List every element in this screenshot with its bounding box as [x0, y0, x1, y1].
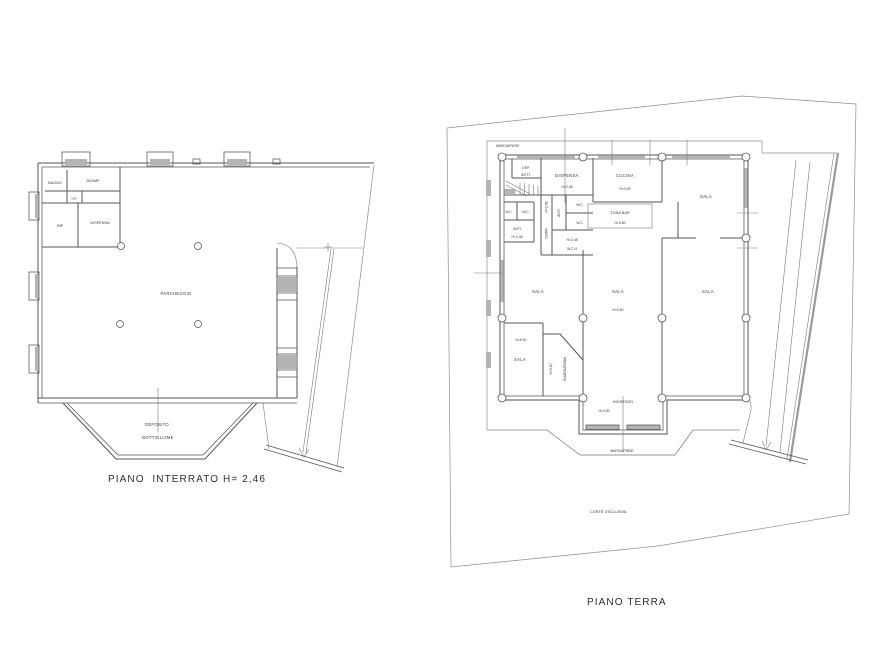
room-label-ingresso: INGRESSO: [613, 400, 633, 404]
room-label-wc-a: W.C.: [505, 210, 512, 214]
ground-room-labels: MARCIAPIEDE DEP. BOTT. DISPENSA H=2,48 C…: [496, 144, 714, 514]
basement-room-walls: [42, 167, 120, 247]
room-label-wc-d: W.C.: [576, 221, 583, 225]
property-boundary: [447, 96, 856, 567]
floor-plan-drawing: BAGNO DISIMP DIS RIP DISPENSA PARCHEGGIO…: [0, 0, 893, 670]
room-label-bottigliame: BOTTIGLIAME: [142, 435, 173, 440]
room-label-wch: W.C.H: [567, 247, 577, 251]
room-label-cucina: CUCINA: [616, 173, 634, 178]
room-label-dispensa-basement: DISPENSA: [90, 221, 110, 225]
room-height-anti: H=2,48: [511, 235, 522, 239]
label-corte-esclusiva: CORTE ESCLUSIVA: [590, 510, 627, 514]
basement-exterior-walls: [38, 163, 374, 467]
room-height-zona-bar: H=5,60: [614, 221, 625, 225]
room-label-dispensa: DISPENSA: [555, 173, 579, 178]
room-height-guardaroba: H=5,60: [549, 363, 553, 374]
room-height-ingresso: H=3,90: [598, 409, 609, 413]
room-height-sala-sw: H=5,60: [515, 338, 526, 342]
basement-caption: PIANO INTERRATO H= 2,46: [108, 474, 266, 485]
room-label-parcheggio: PARCHEGGIO: [160, 291, 192, 296]
basement-ramp-wall-windows: [277, 243, 297, 398]
basement-columns: [117, 243, 202, 328]
ramp-arrow-icon: [299, 448, 309, 457]
room-label-sala-c: SALA: [612, 289, 624, 294]
room-label-dis: DIS: [71, 197, 76, 201]
room-label-wc-c: W.C.: [576, 203, 583, 207]
room-label-guardaroba: GUARDAROBA: [563, 356, 567, 381]
window-axis-marks: [474, 128, 758, 273]
room-label-deposito: DEPOSITO: [145, 422, 169, 427]
room-label-sala-w: SALA: [532, 289, 544, 294]
room-label-corr: CORR.: [545, 227, 549, 238]
room-label-anti-vertical: ANTI: [557, 209, 561, 217]
corridor-height: H=2,48: [545, 201, 549, 212]
room-label-sala-ne: SALA: [700, 194, 712, 199]
ground-caption: PIANO TERRA: [587, 597, 667, 608]
room-label-bagno: BAGNO: [48, 181, 62, 185]
label-marciapiede-top: MARCIAPIEDE: [496, 144, 520, 148]
room-label-rip: RIP: [57, 224, 64, 228]
room-label-wc-b: W.C.: [522, 210, 529, 214]
room-label-sala-sw: SALA: [514, 357, 526, 362]
room-label-bott: BOTT.: [521, 173, 531, 177]
ground-plan: MARCIAPIEDE DEP. BOTT. DISPENSA H=2,48 C…: [447, 96, 856, 608]
basement-roof-vents: [62, 152, 280, 166]
room-height-cucina: H=3,09: [619, 187, 630, 191]
room-height-wch: H=2,48: [566, 238, 577, 242]
room-height-dispensa: H=2,48: [561, 185, 572, 189]
basement-plan: BAGNO DISIMP DIS RIP DISPENSA PARCHEGGIO…: [29, 152, 374, 485]
room-label-disimp: DISIMP: [86, 179, 100, 183]
room-label-dep: DEP.: [522, 166, 530, 170]
room-label-anti: ANTI: [513, 227, 521, 231]
room-label-zona-bar: ZONA BAR: [610, 211, 629, 215]
drawing-sheet: BAGNO DISIMP DIS RIP DISPENSA PARCHEGGIO…: [0, 0, 893, 670]
label-marciapiede-bottom: MARCIAPIEDE: [610, 449, 634, 453]
ground-interior-walls: [504, 158, 746, 452]
room-height-sala-c: H=5,60: [612, 308, 623, 312]
room-label-sala-e: SALA: [702, 289, 714, 294]
